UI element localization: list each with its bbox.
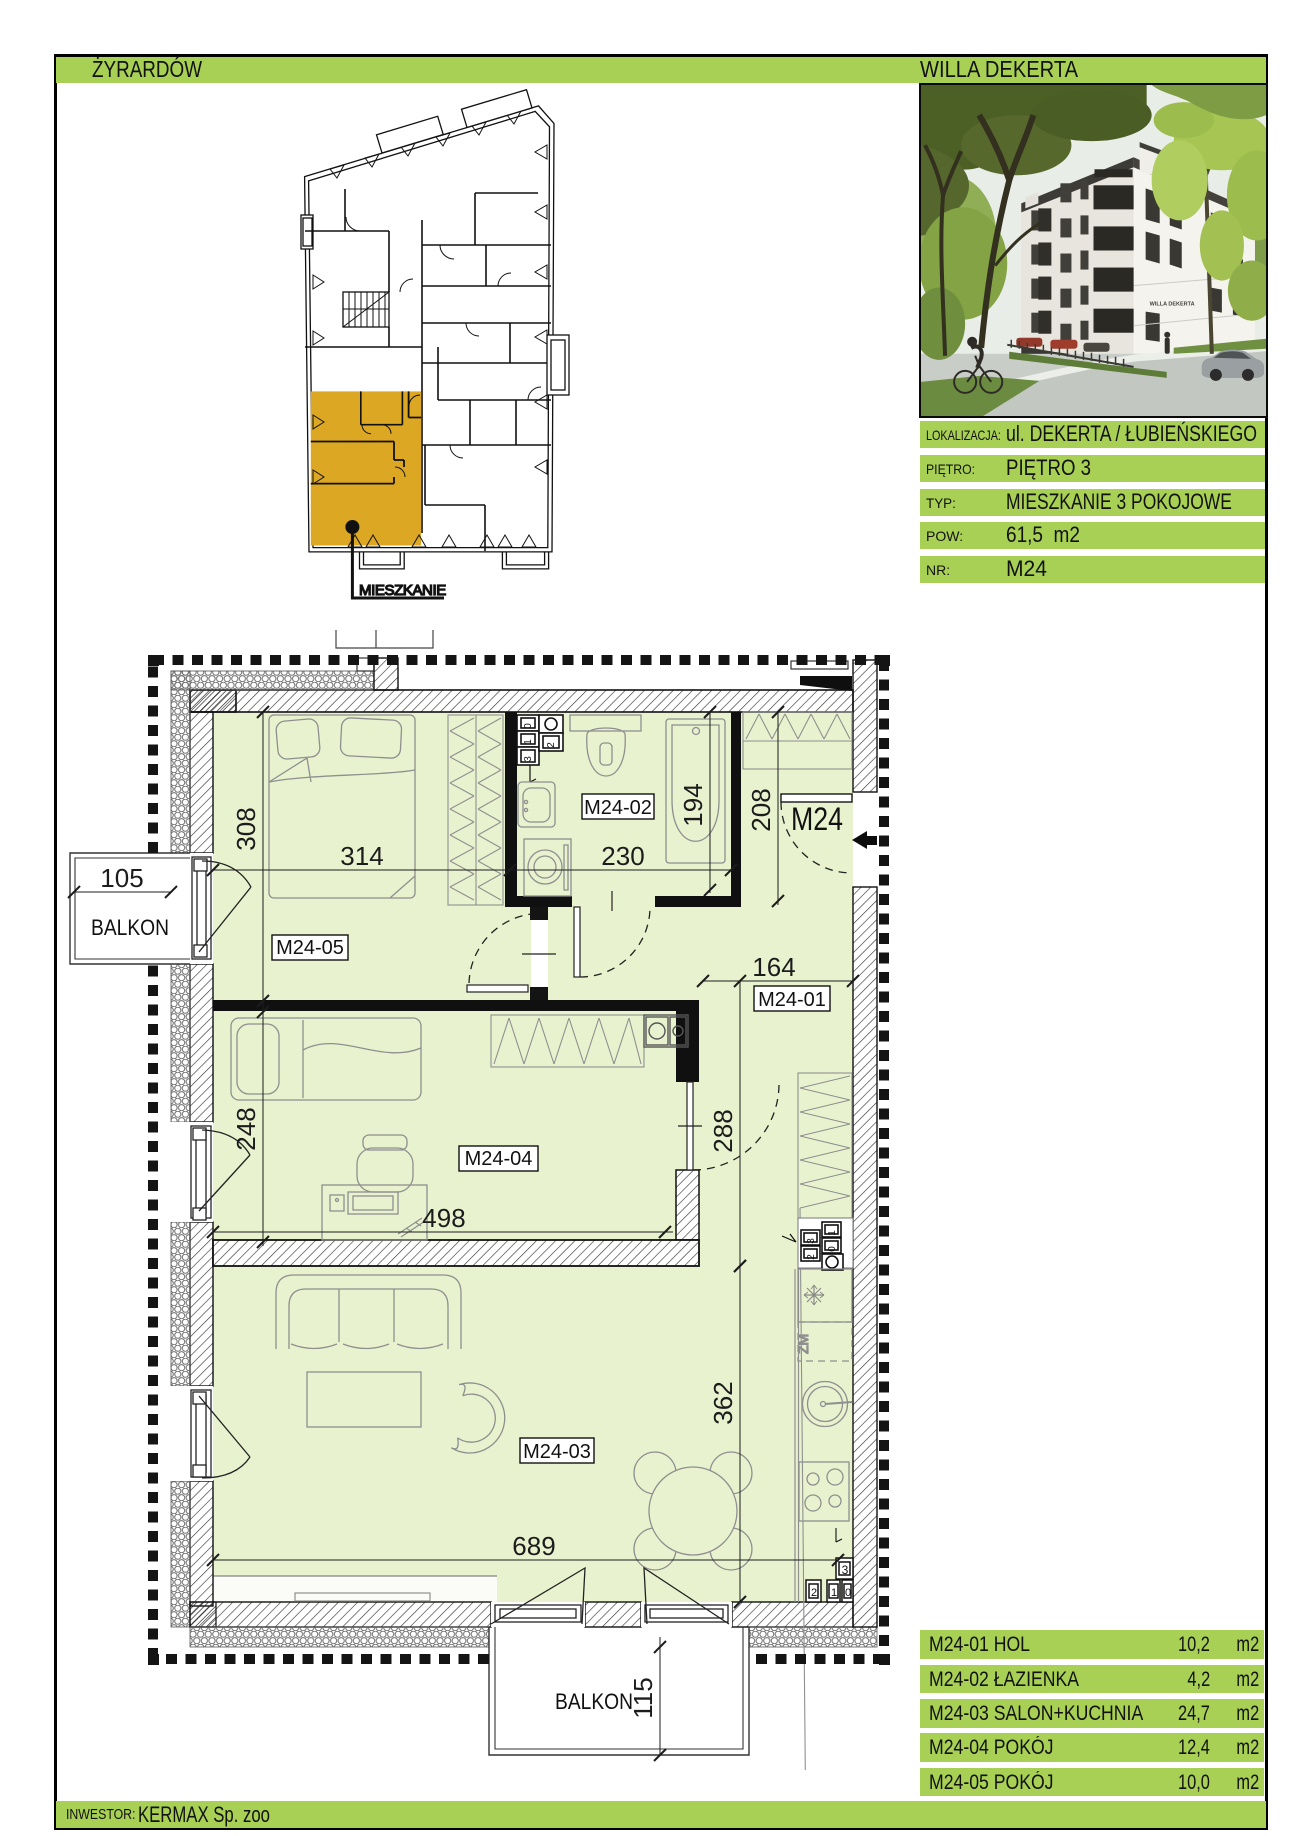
svg-text:314: 314 [340,841,383,871]
svg-text:498: 498 [422,1203,465,1233]
svg-text:308: 308 [231,807,261,850]
svg-text:248: 248 [231,1107,261,1150]
svg-text:BALKON: BALKON [555,1689,633,1714]
svg-text:M24: M24 [791,801,843,837]
svg-text:M24-05: M24-05 [276,937,344,959]
svg-text:WILLA DEKERTA: WILLA DEKERTA [1150,302,1195,308]
svg-text:2: 2 [546,742,557,748]
svg-text:164: 164 [752,952,795,982]
svg-text:208: 208 [746,788,776,831]
svg-text:ZM: ZM [795,1334,811,1354]
svg-text:2: 2 [811,1587,817,1599]
svg-text:115: 115 [628,1677,658,1718]
svg-text:362: 362 [708,1381,738,1424]
svg-text:0: 0 [523,723,534,729]
svg-text:288: 288 [708,1109,738,1152]
svg-text:0: 0 [827,1246,838,1252]
svg-text:M24-02: M24-02 [584,797,652,819]
svg-text:3: 3 [523,756,534,762]
svg-text:M24-04: M24-04 [465,1148,533,1170]
svg-text:105: 105 [100,863,143,893]
svg-text:0: 0 [845,1587,851,1599]
svg-text:1: 1 [523,739,534,745]
svg-text:689: 689 [512,1531,555,1561]
svg-text:BALKON: BALKON [91,915,169,940]
svg-text:M24-03: M24-03 [523,1441,591,1463]
svg-text:1: 1 [827,1230,838,1236]
svg-text:2: 2 [806,1254,817,1260]
svg-text:1: 1 [831,1587,837,1599]
svg-text:230: 230 [601,841,644,871]
svg-text:MIESZKANIE: MIESZKANIE [359,582,446,599]
svg-text:M24-01: M24-01 [758,989,826,1011]
svg-text:194: 194 [678,783,708,826]
svg-text:3: 3 [842,1563,849,1577]
svg-text:3: 3 [806,1238,817,1244]
